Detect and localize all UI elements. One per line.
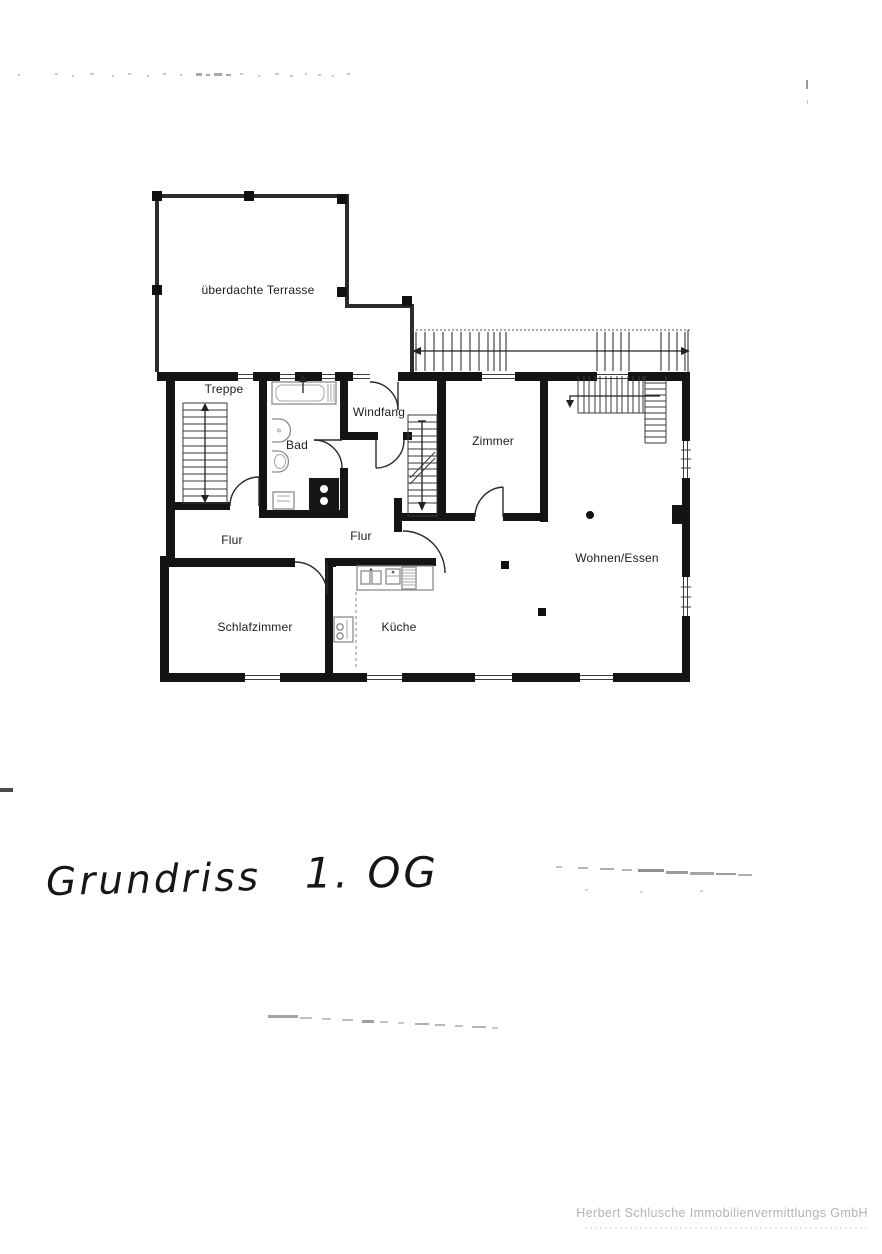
stairs bbox=[183, 376, 666, 516]
bidet bbox=[273, 492, 294, 509]
schlafzimmer-door bbox=[295, 562, 327, 594]
label-flur-left: Flur bbox=[221, 533, 242, 547]
label-wohnen-essen: Wohnen/Essen bbox=[575, 551, 659, 565]
chimney bbox=[309, 478, 339, 512]
square-column bbox=[538, 608, 546, 616]
scanned-floorplan-page: überdachte Terrasse Treppe Bad Windfang … bbox=[0, 0, 882, 1254]
stove bbox=[386, 569, 400, 584]
handwritten-word: 1. OG bbox=[305, 848, 439, 898]
window bbox=[475, 672, 512, 683]
windfang-door bbox=[376, 440, 404, 468]
smudge-line-upper bbox=[556, 866, 752, 893]
label-flur-middle: Flur bbox=[350, 529, 371, 543]
wc bbox=[272, 451, 289, 472]
window bbox=[681, 577, 691, 616]
bad-door bbox=[314, 440, 342, 468]
label-windfang: Windfang bbox=[353, 405, 405, 419]
zimmer-door bbox=[475, 487, 503, 517]
handwritten-title: Grundriss 1. OG bbox=[45, 848, 386, 905]
window bbox=[681, 441, 691, 478]
window bbox=[580, 672, 613, 683]
kitchen-sink bbox=[361, 568, 381, 584]
square-column bbox=[501, 561, 509, 569]
treppe-door bbox=[230, 477, 259, 506]
label-schlafzimmer: Schlafzimmer bbox=[217, 620, 292, 634]
treppe-staircase bbox=[183, 403, 227, 503]
window bbox=[245, 672, 280, 683]
windfang-staircase bbox=[408, 415, 437, 516]
label-kueche: Küche bbox=[381, 620, 416, 634]
oven-unit bbox=[334, 617, 353, 642]
bathtub bbox=[272, 382, 336, 404]
kitchen-fixtures bbox=[334, 566, 433, 668]
window bbox=[597, 371, 628, 382]
window bbox=[482, 371, 515, 382]
round-column bbox=[586, 511, 594, 519]
label-zimmer: Zimmer bbox=[472, 434, 514, 448]
window bbox=[367, 672, 402, 683]
label-terrasse: überdachte Terrasse bbox=[202, 283, 315, 297]
scan-artifacts bbox=[0, 73, 868, 1228]
room-labels: überdachte Terrasse Treppe Bad Windfang … bbox=[202, 283, 659, 634]
window bbox=[238, 371, 253, 382]
terrace bbox=[152, 191, 412, 372]
balcony-walkway bbox=[412, 330, 690, 372]
appliance-hatched bbox=[402, 567, 416, 589]
label-treppe: Treppe bbox=[205, 382, 244, 396]
floor-plan-drawing: überdachte Terrasse Treppe Bad Windfang … bbox=[0, 0, 882, 1254]
walls bbox=[157, 372, 690, 682]
wall-pier bbox=[672, 505, 682, 524]
windows bbox=[238, 371, 691, 683]
handwritten-word: Grundriss bbox=[46, 855, 262, 905]
smudge-line-lower bbox=[268, 1015, 498, 1029]
wohnen-staircase bbox=[566, 376, 666, 443]
window bbox=[322, 371, 335, 382]
company-footer: Herbert Schlusche Immobilienvermittlungs… bbox=[576, 1206, 868, 1220]
window bbox=[353, 371, 370, 382]
entry-door-opening bbox=[370, 371, 398, 382]
label-bad: Bad bbox=[286, 438, 308, 452]
window bbox=[280, 371, 295, 382]
